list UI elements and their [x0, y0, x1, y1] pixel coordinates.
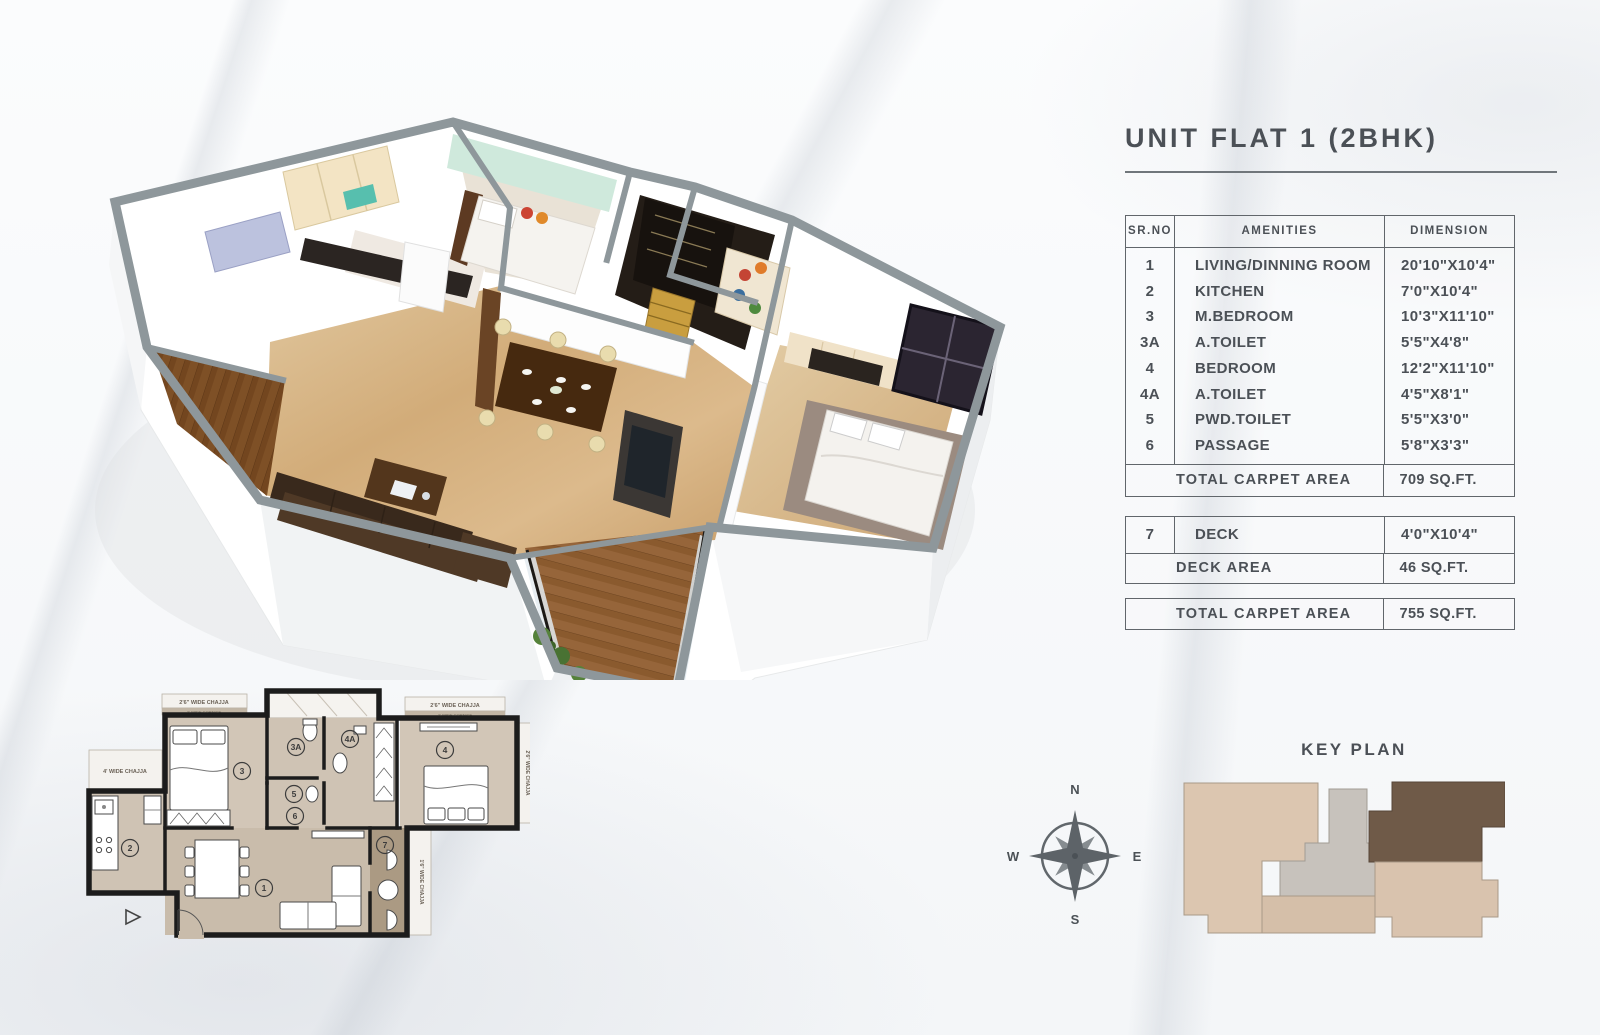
- room-circle-passage: 6: [293, 811, 298, 821]
- row-sr: 5: [1126, 407, 1174, 433]
- row-amenity: M.BEDROOM: [1175, 304, 1384, 330]
- deck-sr: 7: [1126, 517, 1174, 553]
- row-amenity: BEDROOM: [1175, 356, 1384, 382]
- row-amenity: A.TOILET: [1175, 330, 1384, 356]
- chajja-deck-label: 1'6" WIDE CHAJJA: [418, 860, 424, 905]
- compass-rose: N S W E: [1003, 772, 1148, 932]
- room-circle-mtoilet: 3A: [291, 742, 302, 752]
- keyplan-footprint: [1160, 765, 1505, 943]
- table-header: SR.NO AMENITIES DIMENSION: [1126, 216, 1514, 248]
- header-amenities: AMENITIES: [1174, 216, 1384, 247]
- carpet-area-table: SR.NO AMENITIES DIMENSION 1 2 3 3A 4 4A …: [1125, 215, 1515, 497]
- row-dimension: 10'3"X11'10": [1385, 304, 1514, 330]
- row-amenity: A.TOILET: [1175, 382, 1384, 408]
- brochure-page: { "page_title": "UNIT FLAT 1 (2BHK)", "c…: [0, 0, 1600, 1035]
- row-sr: 3A: [1126, 330, 1174, 356]
- total-carpet-row: TOTAL CARPET AREA 709 SQ.FT.: [1126, 464, 1514, 496]
- room-circle-mbedroom: 3: [240, 766, 245, 776]
- room-circle-atoilet: 4A: [345, 734, 356, 744]
- compass-west-label: W: [1007, 849, 1020, 864]
- chajja-top-left-label: 2'6" WIDE CHAJJA: [179, 700, 228, 706]
- grand-total-table: TOTAL CARPET AREA 755 SQ.FT.: [1125, 598, 1515, 630]
- grand-total-value: 755 SQ.FT.: [1383, 599, 1513, 629]
- row-dimension: 4'5"X8'1": [1385, 382, 1514, 408]
- row-dimension: 7'0"X10'4": [1385, 279, 1514, 305]
- row-amenity: KITCHEN: [1175, 279, 1384, 305]
- deck-row: 7 DECK 4'0"X10'4": [1126, 517, 1514, 554]
- entry-arrow-icon: [126, 910, 140, 924]
- grand-total-row: TOTAL CARPET AREA 755 SQ.FT.: [1126, 599, 1514, 629]
- row-dimension: 20'10"X10'4": [1385, 253, 1514, 279]
- row-sr: 4A: [1126, 382, 1174, 408]
- table-body: 1 2 3 3A 4 4A 5 6 LIVING/DINNING ROOM KI…: [1126, 248, 1514, 464]
- total-carpet-value: 709 SQ.FT.: [1383, 465, 1513, 496]
- chajja-right-label: 2'6" WIDE CHAJJA: [524, 751, 530, 796]
- page-title: UNIT FLAT 1 (2BHK): [1125, 123, 1438, 154]
- room-circle-living: 1: [262, 883, 267, 893]
- keyplan-title: KEY PLAN: [1254, 740, 1454, 760]
- duct: [267, 691, 379, 718]
- row-amenity: LIVING/DINNING ROOM: [1175, 253, 1384, 279]
- room-circle-bedroom: 4: [443, 745, 448, 755]
- room-circle-deck: 7: [383, 840, 388, 850]
- compass-north-label: N: [1070, 782, 1079, 797]
- row-dimension: 5'8"X3'3": [1385, 433, 1514, 459]
- total-carpet-label: TOTAL CARPET AREA: [1126, 465, 1383, 496]
- row-dimension: 5'5"X3'0": [1385, 407, 1514, 433]
- room-circle-pwd: 5: [292, 789, 297, 799]
- deck-area-label: DECK AREA: [1126, 554, 1383, 583]
- row-sr: 3: [1126, 304, 1174, 330]
- row-sr: 1: [1126, 253, 1174, 279]
- keyplan-wing-bottom-right: [1375, 862, 1498, 937]
- room-circle-kitchen: 2: [128, 843, 133, 853]
- header-srno: SR.NO: [1126, 216, 1174, 247]
- compass-south-label: S: [1071, 912, 1080, 927]
- deck-table: 7 DECK 4'0"X10'4" DECK AREA 46 SQ.FT.: [1125, 516, 1515, 584]
- deck-area-row: DECK AREA 46 SQ.FT.: [1126, 554, 1514, 583]
- row-dimension: 12'2"X11'10": [1385, 356, 1514, 382]
- chajja-top-right-label: 2'6" WIDE CHAJJA: [430, 703, 479, 709]
- deck-area-value: 46 SQ.FT.: [1383, 554, 1513, 583]
- grand-total-label: TOTAL CARPET AREA: [1126, 599, 1383, 629]
- row-sr: 4: [1126, 356, 1174, 382]
- row-amenity: PASSAGE: [1175, 433, 1384, 459]
- keyplan-unit-highlighted: [1369, 782, 1505, 862]
- row-sr: 2: [1126, 279, 1174, 305]
- row-amenity: PWD.TOILET: [1175, 407, 1384, 433]
- deck-dimension: 4'0"X10'4": [1384, 517, 1514, 553]
- deck-amenity: DECK: [1174, 517, 1384, 553]
- row-sr: 6: [1126, 433, 1174, 459]
- keyplan-strip-bottom: [1262, 896, 1375, 933]
- floorplan-2d: 2'6" WIDE CHAJJA 2' WIDE CORNICE 2'6" WI…: [82, 668, 530, 963]
- isometric-3d-floorplan: [55, 80, 1015, 680]
- row-dimension: 5'5"X4'8": [1385, 330, 1514, 356]
- compass-east-label: E: [1133, 849, 1142, 864]
- chajja-left-label: 4' WIDE CHAJJA: [103, 769, 147, 775]
- title-underline: [1125, 171, 1557, 173]
- header-dimension: DIMENSION: [1384, 216, 1514, 247]
